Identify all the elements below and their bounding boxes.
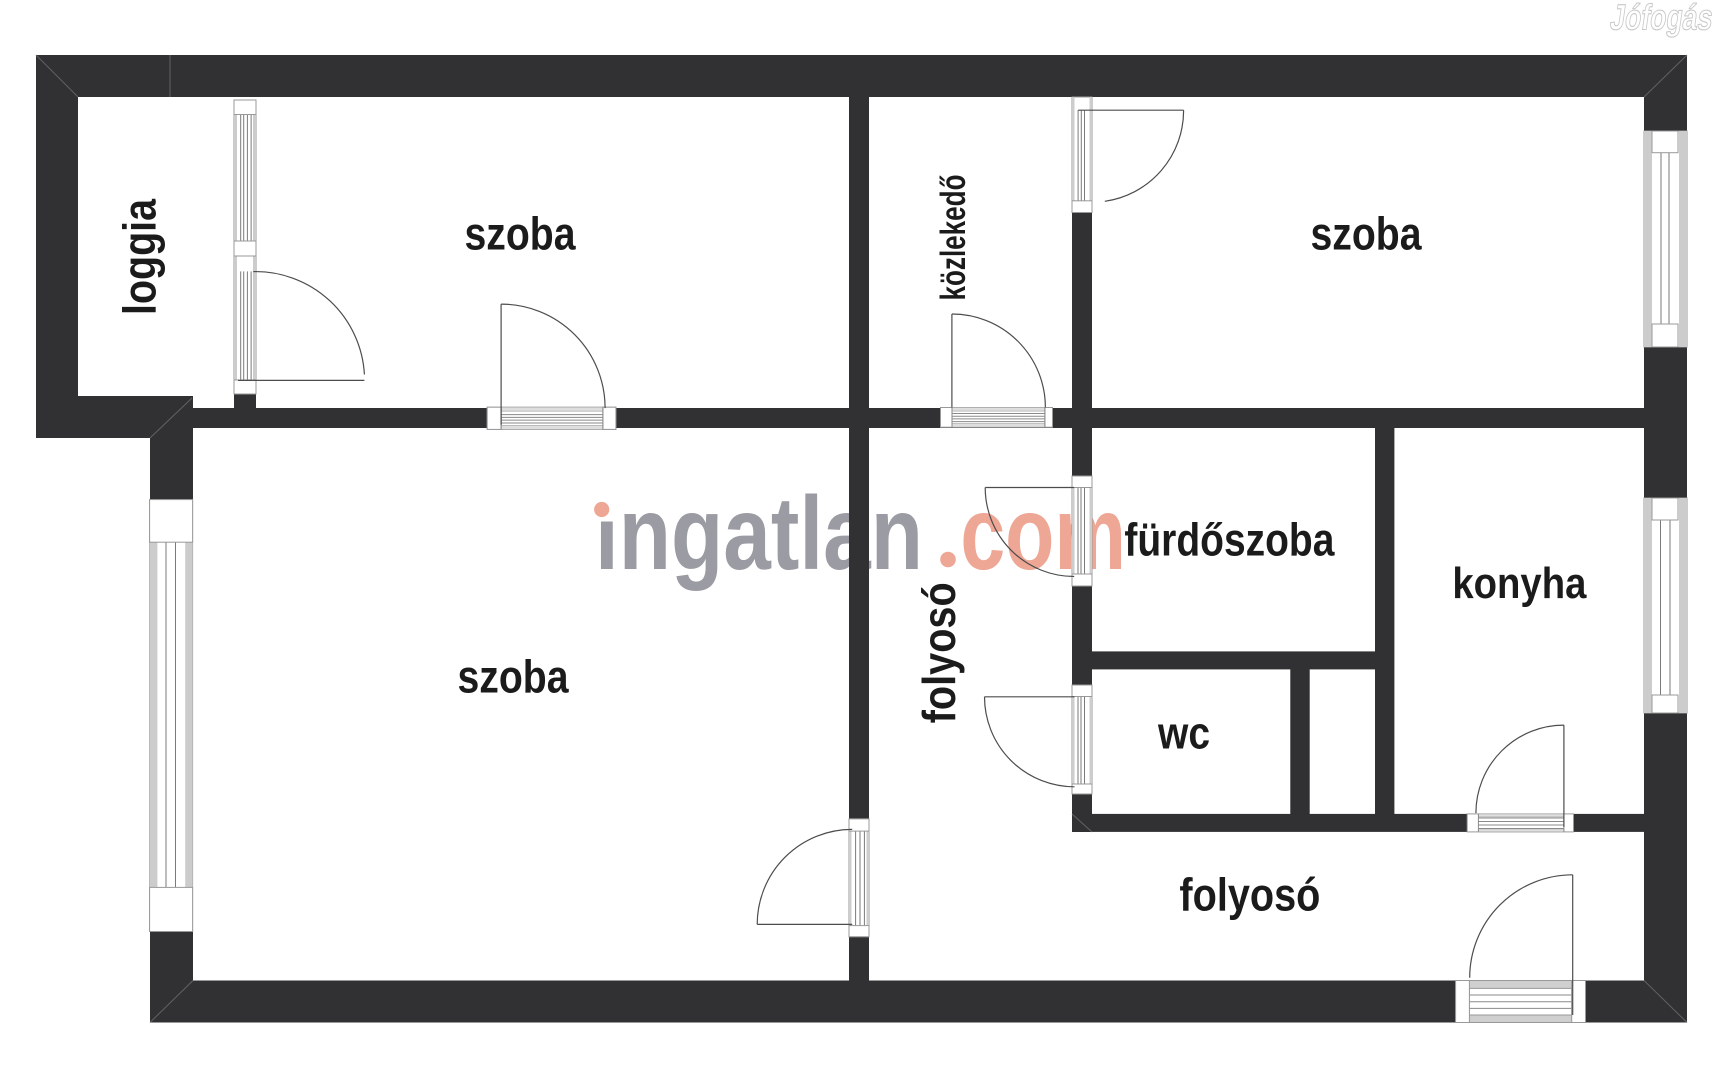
svg-text:szoba: szoba (458, 650, 569, 702)
svg-text:ingatlan: ingatlan (595, 476, 923, 592)
svg-text:folyosó: folyosó (913, 582, 965, 723)
svg-text:loggia: loggia (114, 199, 166, 315)
svg-text:Jófogás: Jófogás (1608, 0, 1716, 37)
svg-text:fürdőszoba: fürdőszoba (1124, 514, 1334, 566)
svg-text:konyha: konyha (1452, 559, 1586, 608)
svg-text:szoba: szoba (465, 207, 576, 259)
svg-text:wc: wc (1157, 707, 1210, 758)
svg-text:szoba: szoba (1311, 207, 1422, 259)
svg-text:.com: .com (938, 476, 1126, 592)
svg-text:folyosó: folyosó (1179, 868, 1320, 920)
svg-text:közlekedő: közlekedő (934, 175, 973, 301)
